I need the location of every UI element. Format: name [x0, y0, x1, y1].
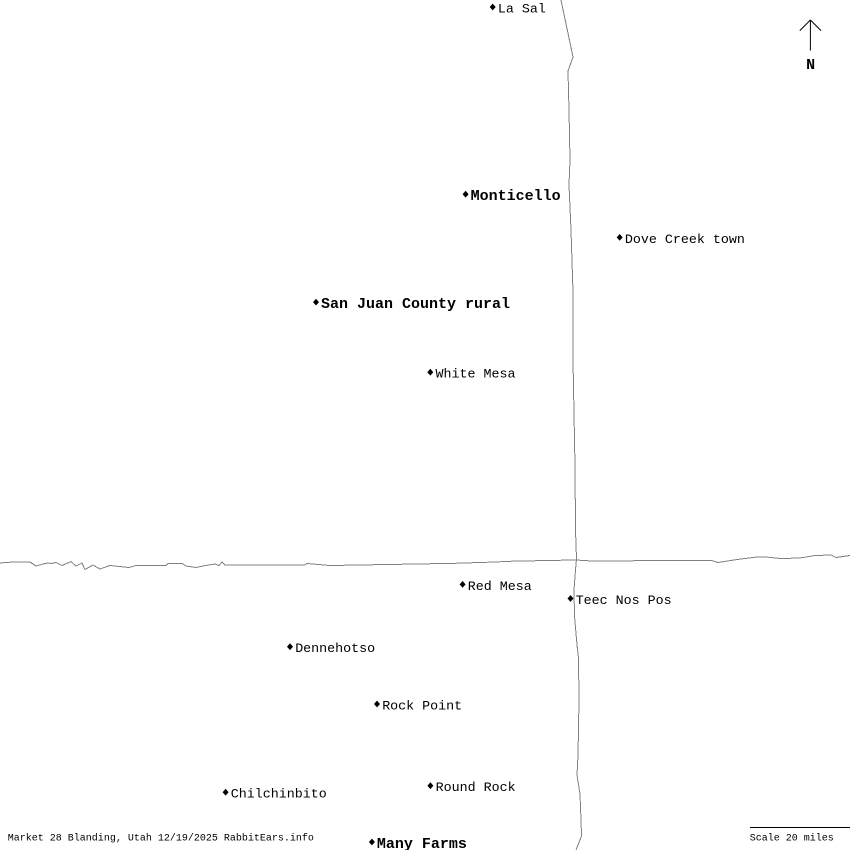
svg-text:Many Farms: Many Farms	[377, 836, 467, 850]
svg-text:Monticello: Monticello	[471, 188, 561, 205]
svg-text:White Mesa: White Mesa	[436, 368, 516, 383]
svg-text:Teec Nos Pos: Teec Nos Pos	[576, 594, 672, 609]
svg-text:Market 28 Blanding, Utah 12/19: Market 28 Blanding, Utah 12/19/2025 Rabb…	[8, 833, 314, 845]
svg-text:Red Mesa: Red Mesa	[468, 580, 532, 595]
svg-text:N: N	[806, 57, 815, 74]
svg-text:Dove Creek town: Dove Creek town	[625, 233, 745, 248]
svg-text:Round Rock: Round Rock	[436, 781, 516, 796]
svg-text:Chilchinbito: Chilchinbito	[231, 788, 327, 803]
svg-text:Rock Point: Rock Point	[382, 700, 462, 715]
svg-text:Scale 20 miles: Scale 20 miles	[750, 833, 834, 845]
svg-text:Dennehotso: Dennehotso	[295, 642, 375, 657]
svg-text:La Sal: La Sal	[498, 3, 546, 18]
svg-text:San Juan County rural: San Juan County rural	[321, 296, 510, 313]
